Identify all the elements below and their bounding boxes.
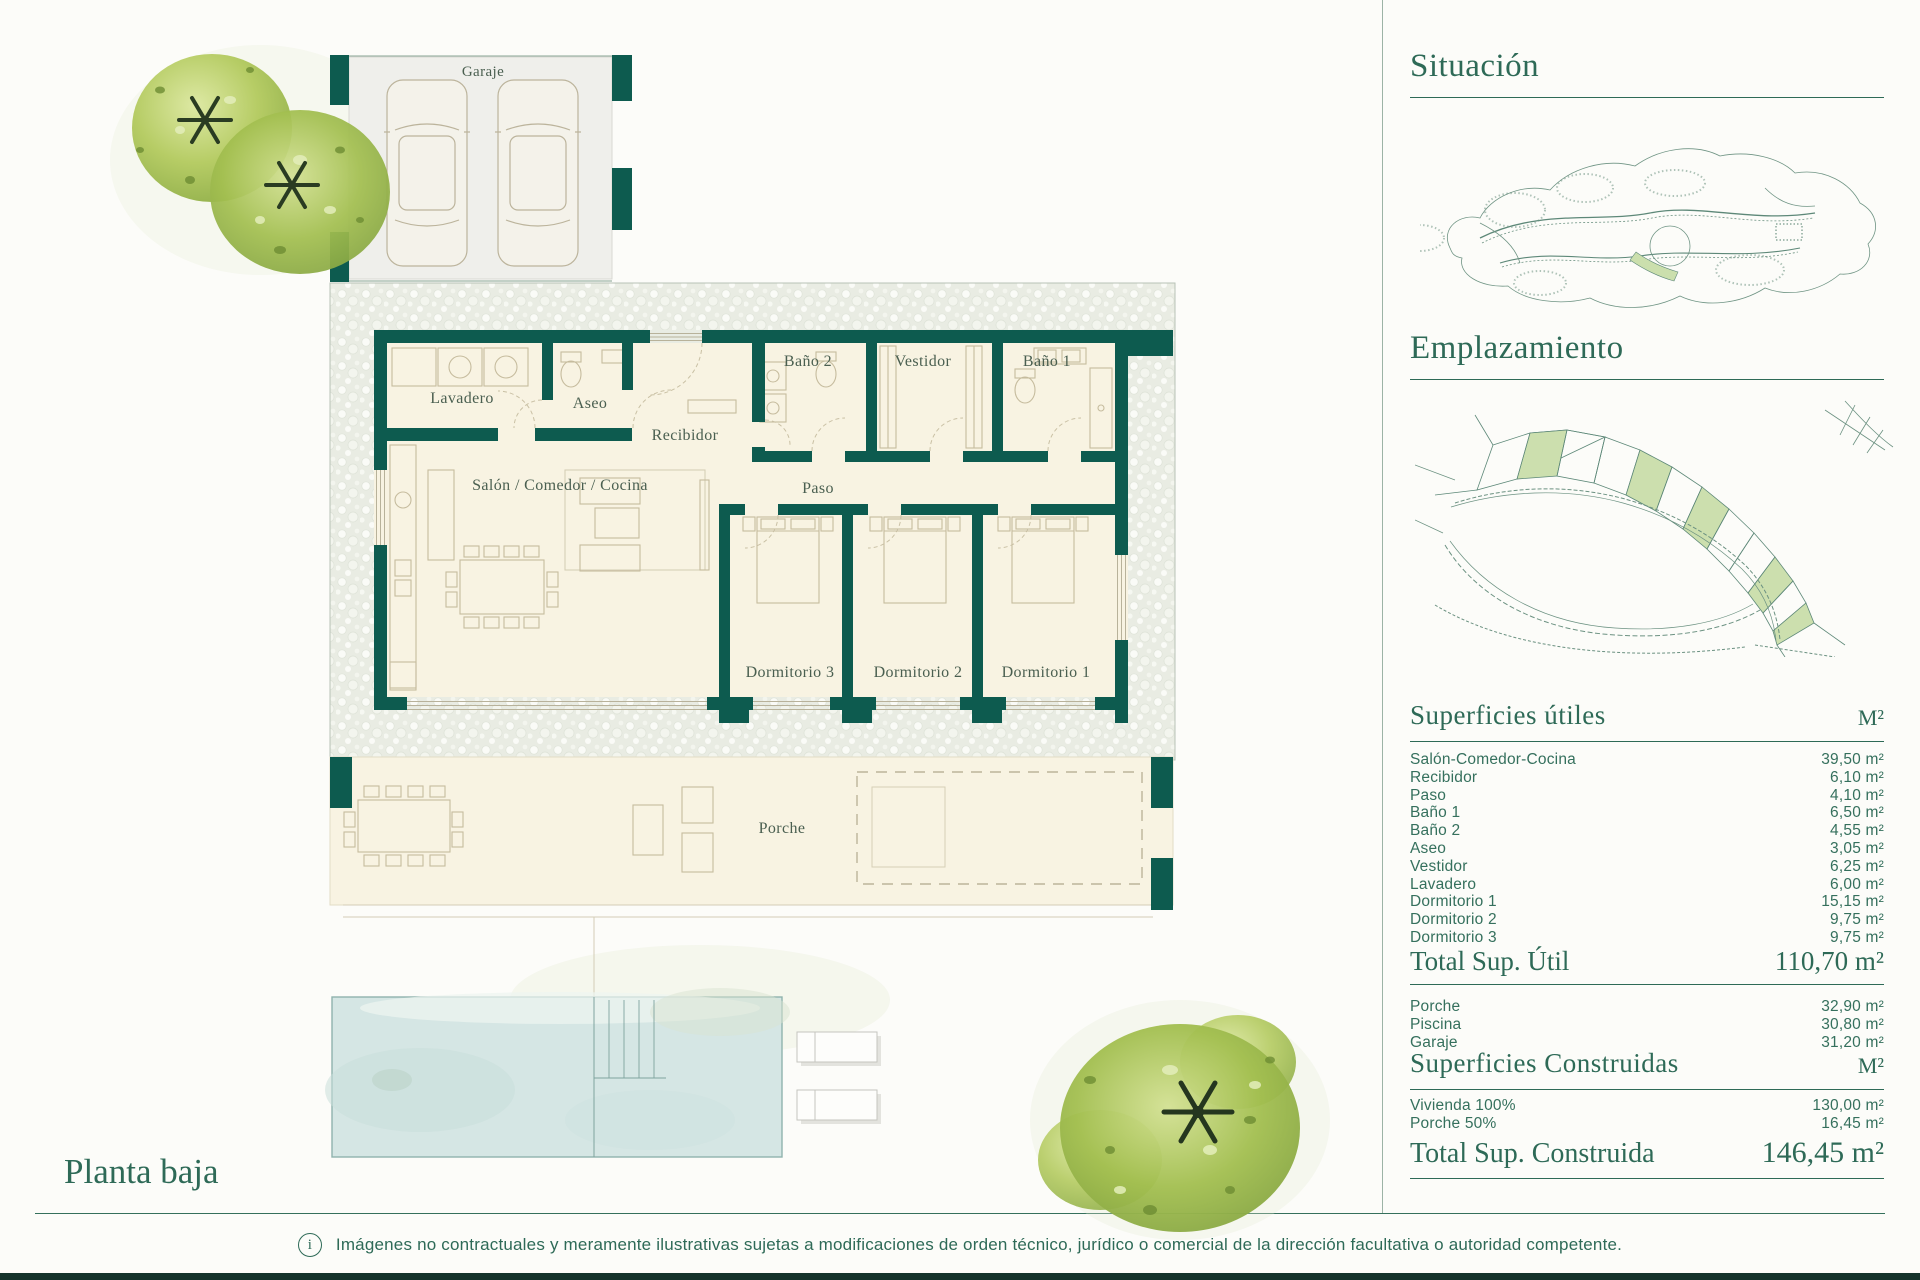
row-value: 6,00 m²: [1830, 876, 1884, 894]
superficies-construidas-title: Superficies Construidas: [1410, 1048, 1679, 1079]
table-row: Piscina30,80 m²: [1410, 1016, 1884, 1034]
situacion-section-header: Situación: [1410, 48, 1884, 98]
row-label: Baño 1: [1410, 804, 1460, 822]
row-label: Vivienda 100%: [1410, 1097, 1516, 1115]
emplazamiento-section-header: Emplazamiento: [1410, 330, 1884, 380]
table-row: Porche32,90 m²: [1410, 998, 1884, 1016]
total-util-label: Total Sup. Útil: [1410, 946, 1569, 977]
room-label-aseo: Aseo: [573, 395, 607, 412]
table-row: Baño 16,50 m²: [1410, 804, 1884, 822]
row-label: Porche 50%: [1410, 1115, 1496, 1133]
room-label-lavadero: Lavadero: [430, 390, 494, 407]
room-label-recibidor: Recibidor: [652, 427, 719, 444]
superficies-utiles-unit: M²: [1858, 705, 1884, 731]
row-label: Paso: [1410, 787, 1446, 805]
total-construida-value: 146,45 m²: [1762, 1136, 1884, 1170]
table-row: Salón-Comedor-Cocina39,50 m²: [1410, 751, 1884, 769]
table-row: Dormitorio 115,15 m²: [1410, 893, 1884, 911]
room-label-bano1: Baño 1: [1023, 353, 1071, 370]
superficies-utiles-header: Superficies útiles M²: [1410, 700, 1884, 742]
total-util-row: Total Sup. Útil 110,70 m²: [1410, 946, 1884, 985]
table-row: Aseo3,05 m²: [1410, 840, 1884, 858]
row-value: 130,00 m²: [1812, 1097, 1884, 1115]
table-row: Paso4,10 m²: [1410, 787, 1884, 805]
floor-plan: Garaje Lavadero Aseo Recibidor Baño 2 Ve…: [0, 0, 1400, 1245]
superficies-utiles-table: Salón-Comedor-Cocina39,50 m² Recibidor6,…: [1410, 751, 1884, 947]
room-label-porche: Porche: [759, 820, 806, 837]
row-label: Aseo: [1410, 840, 1446, 858]
row-value: 6,10 m²: [1830, 769, 1884, 787]
total-util-value: 110,70 m²: [1775, 946, 1884, 977]
room-label-salon: Salón / Comedor / Cocina: [472, 477, 648, 494]
house-floor: [387, 343, 1115, 697]
pool: [325, 988, 790, 1157]
room-label-vestidor: Vestidor: [895, 353, 952, 370]
total-construida-label: Total Sup. Construida: [1410, 1138, 1655, 1170]
emplazamiento-map: [1415, 395, 1895, 657]
table-row: Recibidor6,10 m²: [1410, 769, 1884, 787]
row-value: 9,75 m²: [1830, 929, 1884, 947]
table-row: Porche 50%16,45 m²: [1410, 1115, 1884, 1133]
row-label: Porche: [1410, 998, 1460, 1016]
row-label: Vestidor: [1410, 858, 1468, 876]
table-row: Baño 24,55 m²: [1410, 822, 1884, 840]
superficies-construidas-header: Superficies Construidas M²: [1410, 1048, 1884, 1090]
construidas-table: Vivienda 100%130,00 m² Porche 50%16,45 m…: [1410, 1097, 1884, 1133]
sun-loungers: [797, 1032, 881, 1124]
row-value: 9,75 m²: [1830, 911, 1884, 929]
table-row: Dormitorio 39,75 m²: [1410, 929, 1884, 947]
row-label: Dormitorio 3: [1410, 929, 1497, 947]
row-label: Salón-Comedor-Cocina: [1410, 751, 1576, 769]
row-value: 4,10 m²: [1830, 787, 1884, 805]
row-value: 6,25 m²: [1830, 858, 1884, 876]
row-label: Dormitorio 2: [1410, 911, 1497, 929]
row-label: Lavadero: [1410, 876, 1476, 894]
row-value: 16,45 m²: [1821, 1115, 1884, 1133]
table-row: Lavadero6,00 m²: [1410, 876, 1884, 894]
superficies-construidas-unit: M²: [1858, 1053, 1884, 1079]
situacion-title: Situación: [1410, 48, 1539, 84]
room-label-bano2: Baño 2: [784, 353, 832, 370]
brochure-page: Garaje Lavadero Aseo Recibidor Baño 2 Ve…: [0, 0, 1920, 1280]
situacion-map: [1420, 128, 1884, 320]
row-value: 3,05 m²: [1830, 840, 1884, 858]
row-value: 4,55 m²: [1830, 822, 1884, 840]
emplazamiento-title: Emplazamiento: [1410, 330, 1624, 366]
room-label-dormitorio1: Dormitorio 1: [1002, 664, 1091, 681]
room-label-paso: Paso: [802, 480, 834, 497]
exterior-table: Porche32,90 m² Piscina30,80 m² Garaje31,…: [1410, 998, 1884, 1051]
table-row: Vivienda 100%130,00 m²: [1410, 1097, 1884, 1115]
row-label: Dormitorio 1: [1410, 893, 1497, 911]
room-label-dormitorio2: Dormitorio 2: [874, 664, 963, 681]
table-row: Dormitorio 29,75 m²: [1410, 911, 1884, 929]
situacion-highlight-plot: [1630, 252, 1678, 281]
superficies-utiles-title: Superficies útiles: [1410, 700, 1606, 731]
row-value: 30,80 m²: [1821, 1016, 1884, 1034]
row-value: 32,90 m²: [1821, 998, 1884, 1016]
table-row: Vestidor6,25 m²: [1410, 858, 1884, 876]
bottom-bar: [0, 1273, 1920, 1280]
room-label-garaje: Garaje: [462, 64, 504, 80]
row-label: Recibidor: [1410, 769, 1477, 787]
row-value: 15,15 m²: [1821, 893, 1884, 911]
room-label-dormitorio3: Dormitorio 3: [746, 664, 835, 681]
row-label: Baño 2: [1410, 822, 1460, 840]
row-label: Piscina: [1410, 1016, 1461, 1034]
total-construida-row: Total Sup. Construida 146,45 m²: [1410, 1136, 1884, 1179]
row-value: 39,50 m²: [1821, 751, 1884, 769]
row-value: 6,50 m²: [1830, 804, 1884, 822]
